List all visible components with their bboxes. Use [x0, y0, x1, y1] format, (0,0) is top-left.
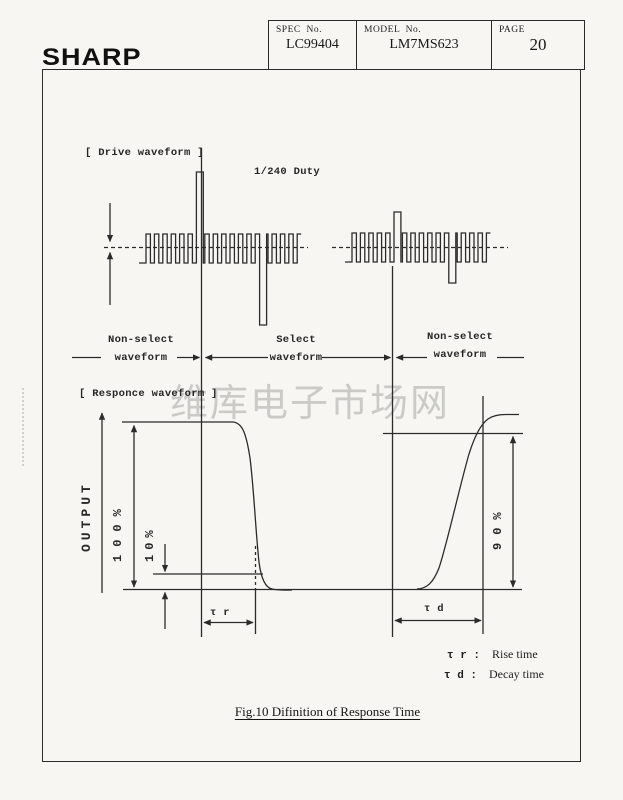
- response-waveform-label: [ Responce waveform ]: [79, 388, 218, 400]
- region-line1: Non-select: [422, 328, 498, 346]
- spec-no-cell: SPEC No. LC99404: [269, 21, 356, 69]
- spec-no-label: SPEC No.: [276, 25, 356, 35]
- header-table: SPEC No. LC99404 MODEL No. LM7MS623 PAGE…: [268, 20, 585, 70]
- sharp-logo: SHARP: [42, 44, 142, 71]
- duty-label: 1/240 Duty: [254, 166, 320, 178]
- figure-caption: Fig.10 Difinition of Response Time: [155, 704, 500, 720]
- tau-d-label: τ d: [424, 603, 444, 615]
- page-label: PAGE: [499, 25, 584, 35]
- level-10-label: 10%: [144, 506, 156, 562]
- page-cell: PAGE 20: [491, 21, 584, 69]
- legend-decay-time: τ d :Decay time: [444, 667, 544, 682]
- output-axis-label: OUTPUT: [80, 450, 93, 552]
- legend-rise-time: τ r :Rise time: [447, 647, 538, 662]
- scan-artifact: [22, 388, 24, 466]
- spec-no-value: LC99404: [269, 37, 356, 53]
- drive-waveform-label: [ Drive waveform ]: [85, 147, 204, 159]
- region-label-nonselect-left: Non-select waveform: [103, 331, 179, 367]
- region-line2: waveform: [422, 346, 498, 364]
- region-line2: waveform: [258, 349, 334, 367]
- region-line1: Non-select: [103, 331, 179, 349]
- region-label-select: Select waveform: [258, 331, 334, 367]
- tau-r-symbol: τ r :: [447, 650, 480, 662]
- region-line1: Select: [258, 331, 334, 349]
- decay-time-text: Decay time: [489, 667, 544, 681]
- level-100-label: 100%: [112, 474, 124, 562]
- scanned-datasheet-page: SHARP SPEC No. LC99404 MODEL No. LM7MS62…: [0, 0, 623, 800]
- model-no-cell: MODEL No. LM7MS623: [356, 21, 491, 69]
- region-line2: waveform: [103, 349, 179, 367]
- region-label-nonselect-right: Non-select waveform: [422, 328, 498, 364]
- model-no-value: LM7MS623: [357, 37, 491, 53]
- tau-d-symbol: τ d :: [444, 670, 477, 682]
- tau-r-label: τ r: [210, 607, 230, 619]
- level-90-label: 90%: [492, 484, 504, 550]
- page-value: 20: [492, 35, 584, 55]
- model-no-label: MODEL No.: [364, 25, 491, 35]
- rise-time-text: Rise time: [492, 647, 538, 661]
